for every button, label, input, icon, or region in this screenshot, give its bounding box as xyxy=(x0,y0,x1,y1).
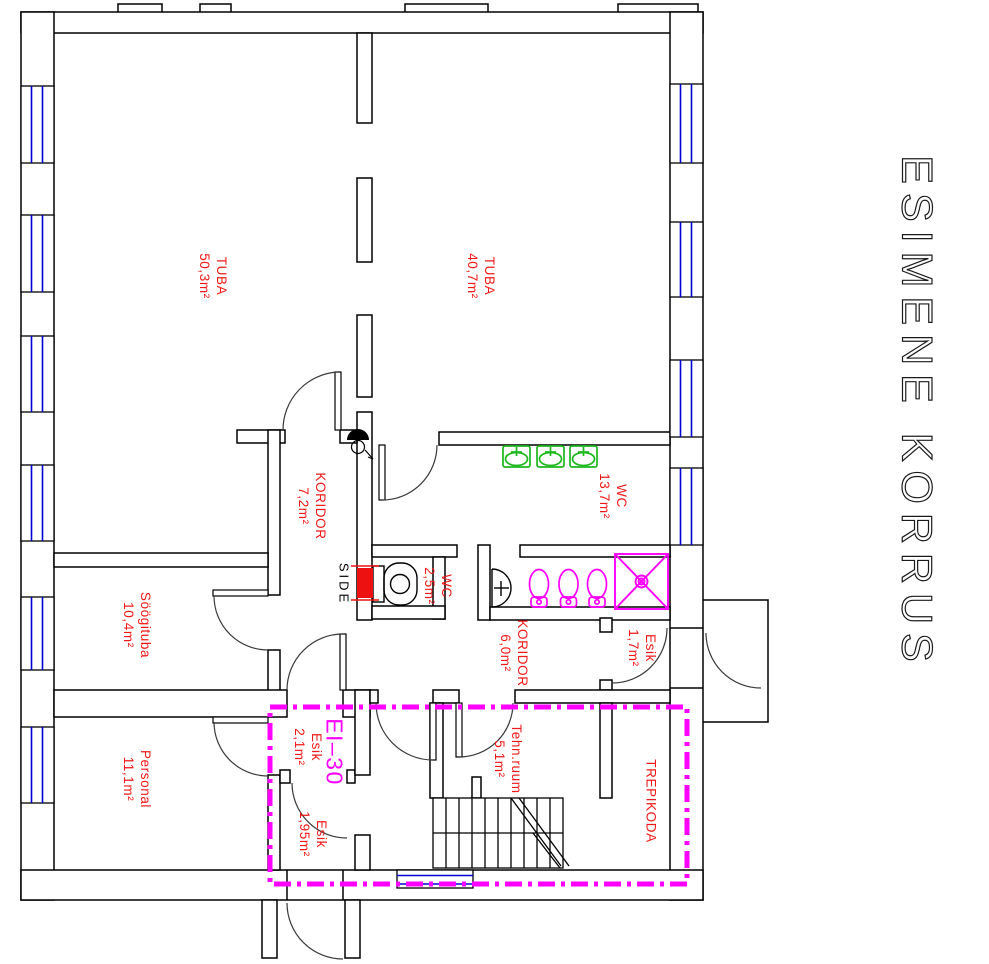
washbasin-icon xyxy=(537,446,564,467)
room-label-trepikoda: TREPIKODA xyxy=(642,759,659,842)
toilets-magenta xyxy=(530,570,607,608)
fire-rating-label: EI–30 xyxy=(321,718,348,786)
room-name: WC xyxy=(437,567,454,605)
washbasin-icon xyxy=(503,446,530,467)
staircase xyxy=(433,798,569,868)
room-area: 2,1m² xyxy=(290,728,307,766)
room-name: TUBA xyxy=(480,253,497,299)
side-marker xyxy=(351,566,379,600)
room-label-koridor-60: KORIDOR 6,0m² xyxy=(496,619,530,686)
shower-icon xyxy=(615,554,668,609)
toilet-icon xyxy=(530,570,549,608)
room-label-esik-17: Esik 1,7m² xyxy=(624,629,658,667)
wall-top xyxy=(21,12,703,33)
room-name: TREPIKODA xyxy=(642,759,659,842)
room-area: 6,0m² xyxy=(496,619,513,686)
floor-plan-linework xyxy=(0,0,989,964)
room-label-koridor-72: KORIDOR 7,2m² xyxy=(294,472,328,539)
toilet-icon xyxy=(588,570,607,608)
room-name: TUBA xyxy=(212,253,229,299)
room-name: WC xyxy=(612,473,629,519)
corner-sink-icon xyxy=(492,569,511,607)
room-label-esik-21: Esik 2,1m² xyxy=(290,728,324,766)
plan-title: ESIMENE KORRUS xyxy=(892,155,941,670)
room-name: KORIDOR xyxy=(311,472,328,539)
washbasins-green xyxy=(503,446,597,467)
room-label-tuba-2: TUBA 40,7m² xyxy=(463,253,497,299)
room-label-tehn-ruum: Tehn.ruum 5,1m² xyxy=(490,724,524,793)
room-area: 11,1m² xyxy=(119,750,136,808)
room-area: 1,7m² xyxy=(624,629,641,667)
room-area: 5,1m² xyxy=(490,724,507,793)
room-area: 13,7m² xyxy=(595,473,612,519)
room-label-personal: Personal 11,1m² xyxy=(119,750,153,808)
entrance-porch xyxy=(703,600,768,722)
room-area: 10,4m² xyxy=(119,592,136,658)
room-label-wc-25: WC 2,5m² xyxy=(420,567,454,605)
room-label-esik-195: Esik 1,95m² xyxy=(295,811,329,857)
room-area: 1,95m² xyxy=(295,811,312,857)
room-area: 40,7m² xyxy=(463,253,480,299)
wc-toilet-icon xyxy=(373,563,417,605)
room-name: Personal xyxy=(136,750,153,808)
washbasin-icon xyxy=(570,446,597,467)
room-area: 50,3m² xyxy=(195,253,212,299)
room-label-wc-137: WC 13,7m² xyxy=(595,473,629,519)
room-label-soogituba: Söögituba 10,4m² xyxy=(119,592,153,658)
room-area: 2,5m² xyxy=(420,567,437,605)
room-name: Söögituba xyxy=(136,592,153,658)
room-name: Esik xyxy=(641,629,658,667)
toilet-icon xyxy=(559,570,578,608)
room-area: 7,2m² xyxy=(294,472,311,539)
room-name: Tehn.ruum xyxy=(507,724,524,793)
side-label: SIDE xyxy=(337,563,352,605)
room-label-tuba-1: TUBA 50,3m² xyxy=(195,253,229,299)
room-name: KORIDOR xyxy=(513,619,530,686)
floor-plan: TUBA 50,3m² TUBA 40,7m² KORIDOR 7,2m² WC… xyxy=(0,0,989,964)
room-name: Esik xyxy=(312,811,329,857)
wall-bottom xyxy=(21,870,703,900)
